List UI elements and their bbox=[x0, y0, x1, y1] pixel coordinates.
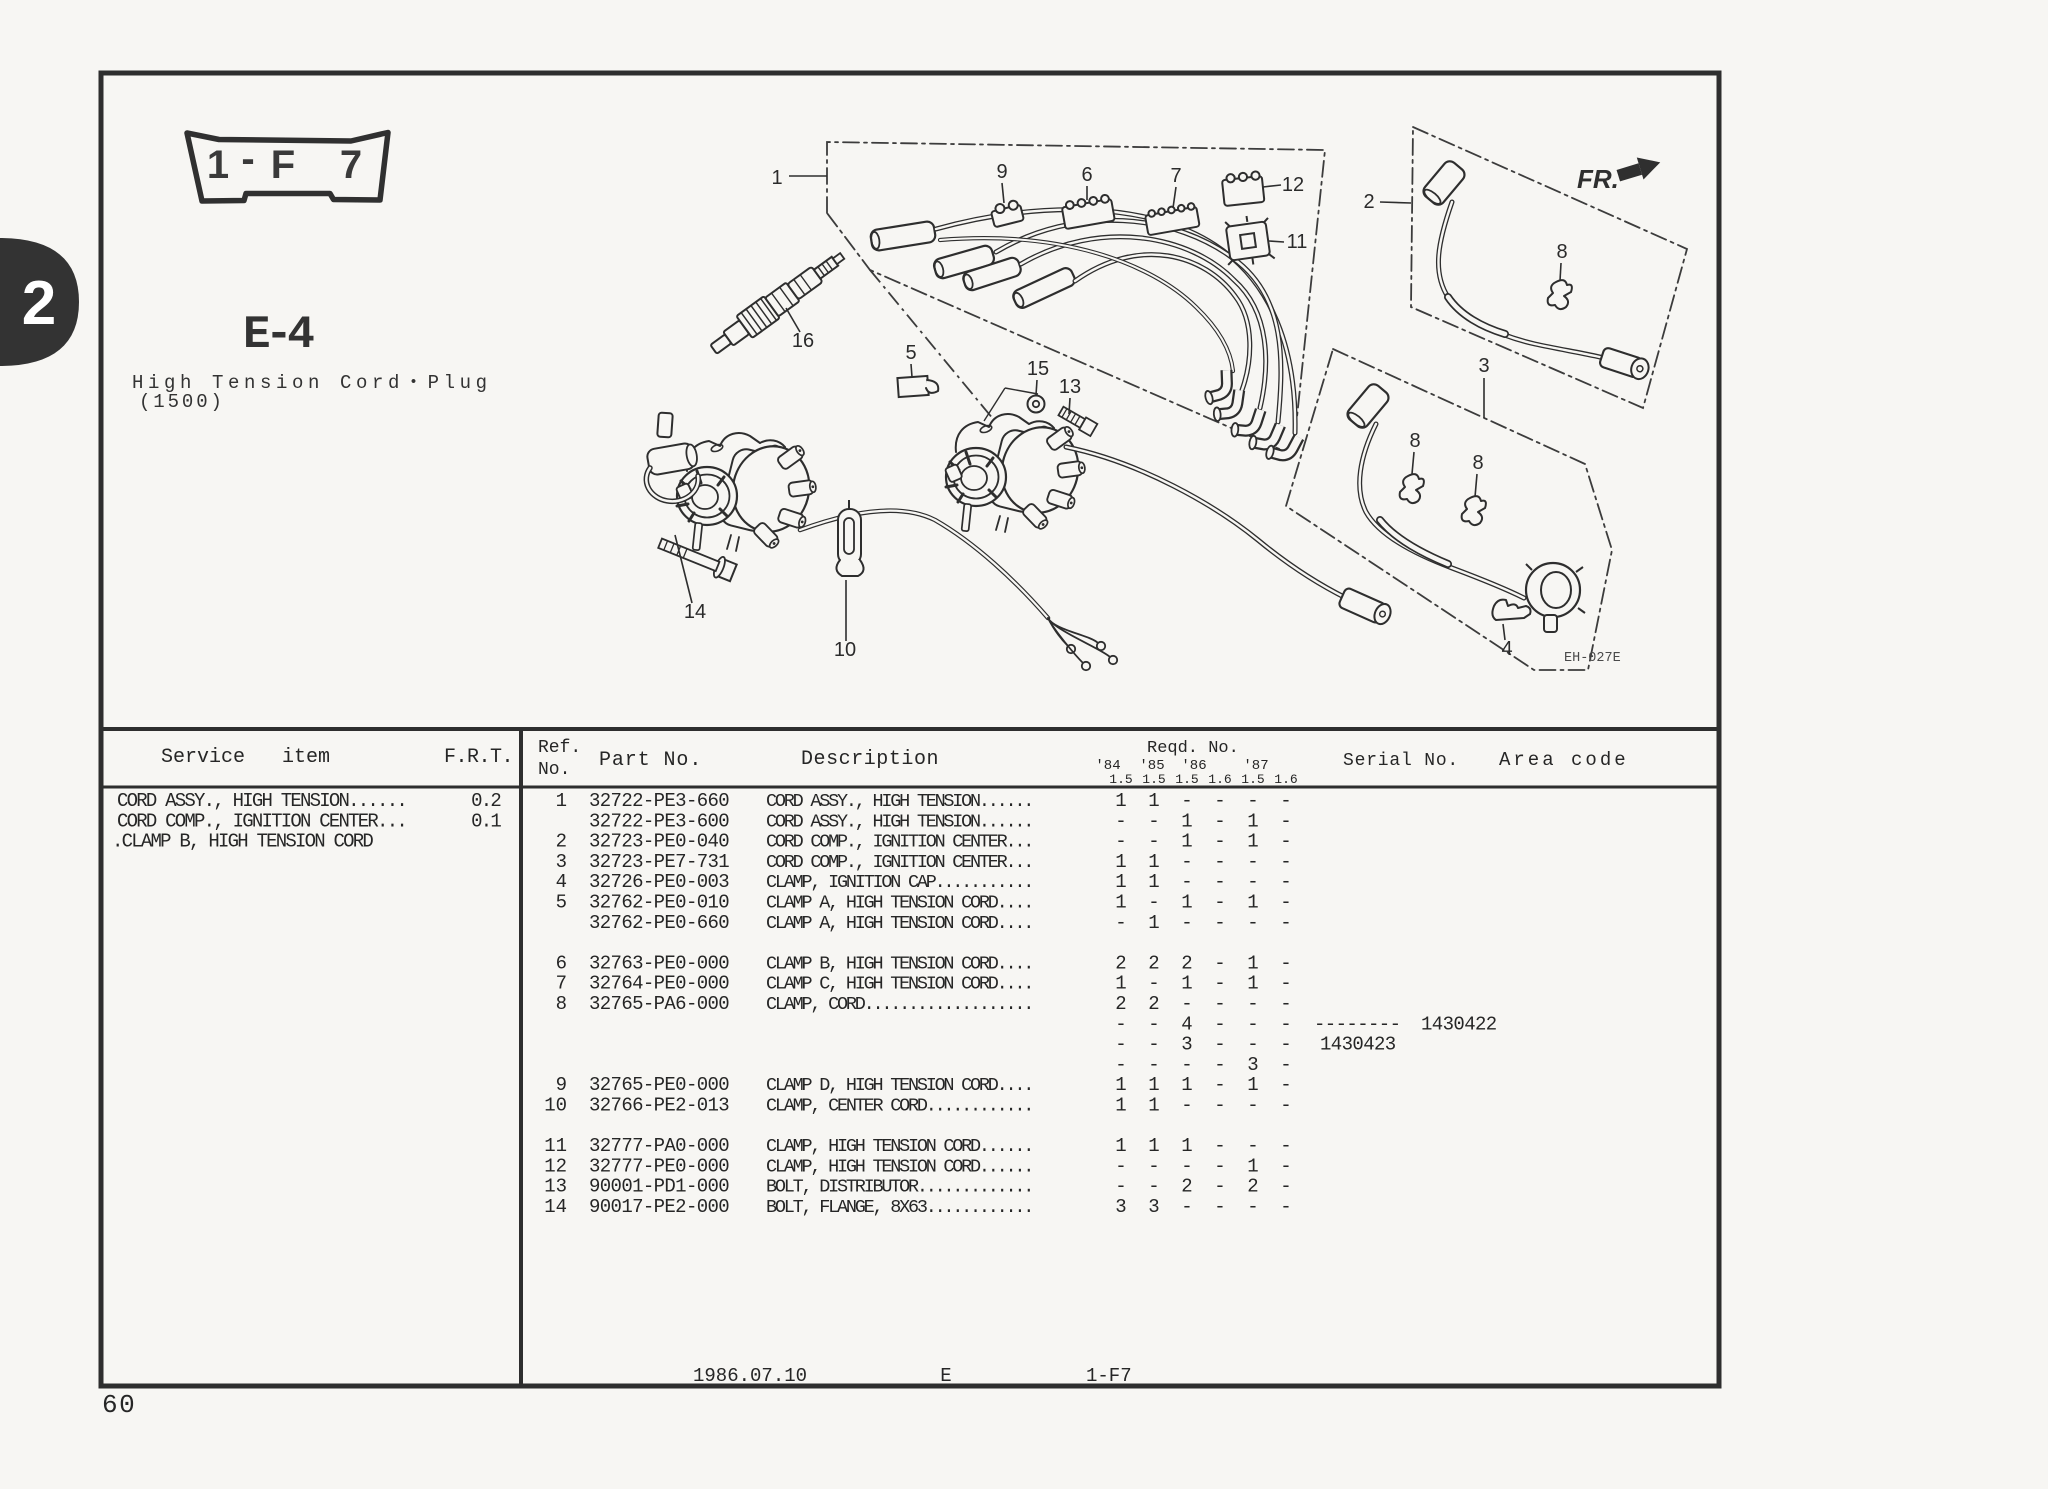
svg-text:E: E bbox=[940, 1365, 951, 1387]
svg-text:-: - bbox=[1148, 973, 1159, 995]
svg-text:CLAMP, IGNITION CAP...........: CLAMP, IGNITION CAP........... bbox=[766, 872, 1032, 893]
svg-text:item: item bbox=[282, 746, 330, 769]
svg-text:-: - bbox=[1214, 973, 1225, 995]
svg-text:-: - bbox=[1148, 1155, 1159, 1177]
svg-text:32762-PE0-010: 32762-PE0-010 bbox=[589, 892, 729, 914]
svg-text:-: - bbox=[1214, 892, 1225, 914]
svg-text:8: 8 bbox=[1556, 241, 1567, 263]
svg-text:Ref.: Ref. bbox=[538, 738, 581, 758]
svg-text:-: - bbox=[1181, 1155, 1192, 1177]
svg-text:1: 1 bbox=[1247, 810, 1258, 832]
svg-text:-: - bbox=[1247, 912, 1258, 934]
svg-text:32722-PE3-660: 32722-PE3-660 bbox=[589, 790, 729, 812]
svg-text:E-4: E-4 bbox=[243, 309, 314, 361]
svg-text:8: 8 bbox=[556, 993, 567, 1015]
svg-text:2: 2 bbox=[1181, 952, 1192, 974]
svg-text:11: 11 bbox=[544, 1135, 567, 1157]
svg-text:1.5: 1.5 bbox=[1241, 772, 1264, 787]
svg-text:12: 12 bbox=[544, 1155, 567, 1177]
svg-text:-: - bbox=[1247, 993, 1258, 1015]
svg-text:-: - bbox=[1214, 1095, 1225, 1117]
svg-text:3: 3 bbox=[556, 851, 567, 873]
svg-text:CLAMP D, HIGH TENSION CORD....: CLAMP D, HIGH TENSION CORD.... bbox=[766, 1075, 1032, 1096]
svg-text:-: - bbox=[1181, 993, 1192, 1015]
svg-text:-: - bbox=[1214, 1074, 1225, 1096]
svg-text:6: 6 bbox=[556, 952, 567, 974]
svg-text:F.R.T.: F.R.T. bbox=[444, 746, 513, 769]
svg-text:-: - bbox=[1214, 1155, 1225, 1177]
svg-text:-: - bbox=[1214, 790, 1225, 812]
svg-text:CLAMP, HIGH TENSION CORD......: CLAMP, HIGH TENSION CORD...... bbox=[766, 1136, 1032, 1157]
svg-text:2: 2 bbox=[1115, 993, 1126, 1015]
svg-text:3: 3 bbox=[1478, 355, 1489, 377]
svg-text:-: - bbox=[1148, 831, 1159, 853]
svg-text:-: - bbox=[1148, 892, 1159, 914]
svg-text:EH-027E: EH-027E bbox=[1564, 651, 1621, 666]
svg-text:-: - bbox=[1280, 1074, 1291, 1096]
svg-text:-: - bbox=[1280, 1095, 1291, 1117]
svg-text:-: - bbox=[1280, 973, 1291, 995]
svg-text:--------: -------- bbox=[1314, 1013, 1400, 1035]
svg-text:1: 1 bbox=[1148, 790, 1159, 812]
svg-text:-: - bbox=[1214, 1135, 1225, 1157]
svg-text:1.5: 1.5 bbox=[1109, 772, 1132, 787]
svg-text:-: - bbox=[1214, 851, 1225, 873]
svg-text:60: 60 bbox=[102, 1390, 136, 1420]
svg-text:-: - bbox=[1115, 912, 1126, 934]
svg-text:-: - bbox=[1214, 952, 1225, 974]
svg-text:2: 2 bbox=[1148, 952, 1159, 974]
svg-text:-: - bbox=[241, 137, 254, 181]
svg-text:15: 15 bbox=[1027, 358, 1049, 380]
svg-text:-: - bbox=[1115, 1013, 1126, 1035]
svg-text:-: - bbox=[1280, 1135, 1291, 1157]
svg-text:-: - bbox=[1280, 1034, 1291, 1056]
svg-text:1.6: 1.6 bbox=[1274, 772, 1297, 787]
svg-text:-: - bbox=[1181, 871, 1192, 893]
svg-text:1: 1 bbox=[1115, 1074, 1126, 1096]
svg-text:1: 1 bbox=[1247, 1074, 1258, 1096]
svg-text:Serial No.: Serial No. bbox=[1343, 751, 1459, 771]
svg-text:9: 9 bbox=[556, 1074, 567, 1096]
svg-text:-: - bbox=[1247, 851, 1258, 873]
svg-text:-: - bbox=[1181, 1095, 1192, 1117]
svg-text:-: - bbox=[1214, 1196, 1225, 1218]
svg-text:CORD COMP., IGNITION CENTER...: CORD COMP., IGNITION CENTER... bbox=[766, 832, 1032, 853]
svg-text:1: 1 bbox=[1247, 952, 1258, 974]
svg-text:No.: No. bbox=[538, 760, 570, 780]
svg-text:32723-PE7-731: 32723-PE7-731 bbox=[589, 851, 729, 873]
svg-text:CLAMP, HIGH TENSION CORD......: CLAMP, HIGH TENSION CORD...... bbox=[766, 1156, 1032, 1177]
svg-text:Part No.: Part No. bbox=[599, 749, 702, 772]
svg-text:1.6: 1.6 bbox=[1208, 772, 1231, 787]
svg-text:32762-PE0-660: 32762-PE0-660 bbox=[589, 912, 729, 934]
svg-text:CLAMP C, HIGH TENSION CORD....: CLAMP C, HIGH TENSION CORD.... bbox=[766, 974, 1032, 995]
svg-text:1: 1 bbox=[1181, 810, 1192, 832]
svg-text:(1500): (1500) bbox=[139, 391, 225, 413]
svg-text:-: - bbox=[1181, 851, 1192, 873]
svg-text:2: 2 bbox=[1363, 191, 1374, 213]
svg-text:-: - bbox=[1247, 1095, 1258, 1117]
svg-text:-: - bbox=[1280, 993, 1291, 1015]
svg-text:-: - bbox=[1280, 831, 1291, 853]
svg-text:-: - bbox=[1115, 1054, 1126, 1076]
svg-text:0.2: 0.2 bbox=[471, 790, 501, 812]
svg-text:1: 1 bbox=[1181, 892, 1192, 914]
svg-text:-: - bbox=[1247, 1034, 1258, 1056]
svg-text:1986.07.10: 1986.07.10 bbox=[693, 1365, 807, 1387]
svg-text:8: 8 bbox=[1409, 430, 1420, 452]
svg-text:-: - bbox=[1181, 1054, 1192, 1076]
svg-text:-: - bbox=[1214, 871, 1225, 893]
svg-text:4: 4 bbox=[1181, 1013, 1192, 1035]
svg-text:-: - bbox=[1115, 1176, 1126, 1198]
svg-text:-: - bbox=[1280, 810, 1291, 832]
svg-text:1: 1 bbox=[1115, 790, 1126, 812]
svg-text:Reqd. No.: Reqd. No. bbox=[1147, 739, 1239, 758]
svg-text:-: - bbox=[1181, 790, 1192, 812]
svg-text:8: 8 bbox=[1472, 452, 1483, 474]
svg-text:-: - bbox=[1247, 1196, 1258, 1218]
svg-text:-: - bbox=[1280, 952, 1291, 974]
svg-text:2: 2 bbox=[556, 831, 567, 853]
svg-text:1: 1 bbox=[1115, 892, 1126, 914]
svg-text:1: 1 bbox=[1115, 973, 1126, 995]
svg-text:-: - bbox=[1148, 810, 1159, 832]
svg-text:3: 3 bbox=[1247, 1054, 1258, 1076]
svg-text:Service: Service bbox=[161, 746, 245, 769]
svg-text:-: - bbox=[1280, 912, 1291, 934]
svg-text:90001-PD1-000: 90001-PD1-000 bbox=[589, 1176, 729, 1198]
svg-text:5: 5 bbox=[905, 342, 916, 364]
svg-text:-: - bbox=[1115, 810, 1126, 832]
svg-text:-: - bbox=[1214, 1034, 1225, 1056]
svg-text:10: 10 bbox=[544, 1095, 567, 1117]
svg-text:1.5: 1.5 bbox=[1142, 772, 1165, 787]
svg-text:FR.: FR. bbox=[1577, 164, 1619, 194]
svg-text:CLAMP A, HIGH TENSION CORD....: CLAMP A, HIGH TENSION CORD.... bbox=[766, 893, 1032, 914]
svg-text:-: - bbox=[1115, 1034, 1126, 1056]
svg-text:-: - bbox=[1214, 1054, 1225, 1076]
svg-text:CLAMP, CENTER CORD............: CLAMP, CENTER CORD............ bbox=[766, 1096, 1032, 1117]
svg-text:1: 1 bbox=[1148, 871, 1159, 893]
svg-text:-: - bbox=[1280, 1196, 1291, 1218]
svg-text:1-F7: 1-F7 bbox=[1086, 1365, 1132, 1387]
svg-text:-: - bbox=[1214, 831, 1225, 853]
svg-text:13: 13 bbox=[544, 1176, 567, 1198]
svg-text:2: 2 bbox=[1247, 1176, 1258, 1198]
svg-text:-: - bbox=[1280, 871, 1291, 893]
svg-text:2: 2 bbox=[1115, 952, 1126, 974]
svg-text:7: 7 bbox=[556, 973, 567, 995]
svg-text:-: - bbox=[1280, 892, 1291, 914]
svg-text:CLAMP B, HIGH TENSION CORD....: CLAMP B, HIGH TENSION CORD.... bbox=[766, 953, 1032, 974]
svg-text:1: 1 bbox=[207, 143, 229, 187]
svg-text:0.1: 0.1 bbox=[471, 810, 501, 832]
svg-text:Area code: Area code bbox=[1499, 749, 1629, 771]
svg-text:6: 6 bbox=[1081, 164, 1092, 186]
svg-text:11: 11 bbox=[1287, 231, 1308, 253]
svg-text:-: - bbox=[1214, 993, 1225, 1015]
svg-text:1: 1 bbox=[1115, 871, 1126, 893]
svg-text:90017-PE2-000: 90017-PE2-000 bbox=[589, 1196, 729, 1218]
svg-text:CORD ASSY., HIGH TENSION......: CORD ASSY., HIGH TENSION...... bbox=[766, 791, 1032, 812]
svg-text:1: 1 bbox=[1115, 1135, 1126, 1157]
svg-text:1: 1 bbox=[1181, 1135, 1192, 1157]
svg-text:-: - bbox=[1247, 790, 1258, 812]
svg-text:12: 12 bbox=[1282, 174, 1304, 196]
svg-text:9: 9 bbox=[996, 161, 1007, 183]
svg-text:1: 1 bbox=[1181, 1074, 1192, 1096]
svg-text:CORD ASSY., HIGH TENSION......: CORD ASSY., HIGH TENSION...... bbox=[117, 790, 406, 812]
svg-text:1: 1 bbox=[1148, 1135, 1159, 1157]
svg-text:1: 1 bbox=[1181, 973, 1192, 995]
svg-text:-: - bbox=[1280, 1176, 1291, 1198]
svg-text:-: - bbox=[1214, 1013, 1225, 1035]
svg-text:16: 16 bbox=[792, 330, 814, 352]
svg-text:-: - bbox=[1148, 1013, 1159, 1035]
svg-text:2: 2 bbox=[22, 269, 56, 338]
svg-text:32726-PE0-003: 32726-PE0-003 bbox=[589, 871, 729, 893]
svg-text:-: - bbox=[1247, 871, 1258, 893]
svg-text:-: - bbox=[1148, 1034, 1159, 1056]
svg-text:1: 1 bbox=[1148, 1095, 1159, 1117]
svg-text:1430423: 1430423 bbox=[1320, 1034, 1396, 1056]
svg-text:32723-PE0-040: 32723-PE0-040 bbox=[589, 831, 729, 853]
svg-text:32722-PE3-600: 32722-PE3-600 bbox=[589, 810, 729, 832]
svg-text:4: 4 bbox=[556, 871, 567, 893]
svg-text:1: 1 bbox=[1181, 831, 1192, 853]
svg-text:1430422: 1430422 bbox=[1421, 1013, 1497, 1035]
svg-text:3: 3 bbox=[1181, 1034, 1192, 1056]
svg-text:Description: Description bbox=[801, 748, 939, 771]
svg-text:2: 2 bbox=[1181, 1176, 1192, 1198]
svg-text:1: 1 bbox=[1115, 1095, 1126, 1117]
svg-text:1.5: 1.5 bbox=[1175, 772, 1198, 787]
svg-text:BOLT, FLANGE, 8X63............: BOLT, FLANGE, 8X63............ bbox=[766, 1197, 1032, 1218]
svg-text:1: 1 bbox=[1148, 851, 1159, 873]
svg-text:32777-PE0-000: 32777-PE0-000 bbox=[589, 1155, 729, 1177]
svg-text:-: - bbox=[1280, 1054, 1291, 1076]
svg-text:32766-PE2-013: 32766-PE2-013 bbox=[589, 1095, 729, 1117]
svg-text:3: 3 bbox=[1148, 1196, 1159, 1218]
svg-text:1: 1 bbox=[771, 167, 782, 189]
svg-text:1: 1 bbox=[1247, 1155, 1258, 1177]
svg-text:1: 1 bbox=[556, 790, 567, 812]
svg-text:10: 10 bbox=[834, 639, 856, 661]
svg-text:CORD COMP., IGNITION CENTER...: CORD COMP., IGNITION CENTER... bbox=[766, 852, 1032, 873]
svg-text:1: 1 bbox=[1247, 892, 1258, 914]
svg-text:-: - bbox=[1247, 1135, 1258, 1157]
svg-text:1: 1 bbox=[1148, 1074, 1159, 1096]
svg-text:13: 13 bbox=[1059, 376, 1081, 398]
svg-text:-: - bbox=[1181, 1196, 1192, 1218]
svg-text:1: 1 bbox=[1247, 831, 1258, 853]
svg-text:1: 1 bbox=[1247, 973, 1258, 995]
svg-text:CLAMP A, HIGH TENSION CORD....: CLAMP A, HIGH TENSION CORD.... bbox=[766, 913, 1032, 934]
svg-text:-: - bbox=[1280, 1013, 1291, 1035]
svg-text:-: - bbox=[1214, 912, 1225, 934]
svg-text:7: 7 bbox=[1170, 165, 1181, 187]
svg-text:CORD ASSY., HIGH TENSION......: CORD ASSY., HIGH TENSION...... bbox=[766, 811, 1032, 832]
svg-text:-: - bbox=[1214, 1176, 1225, 1198]
svg-text:-: - bbox=[1181, 912, 1192, 934]
svg-text:32764-PE0-000: 32764-PE0-000 bbox=[589, 973, 729, 995]
svg-text:1: 1 bbox=[1115, 851, 1126, 873]
svg-text:-: - bbox=[1148, 1054, 1159, 1076]
svg-text:14: 14 bbox=[684, 601, 706, 623]
svg-text:BOLT, DISTRIBUTOR.............: BOLT, DISTRIBUTOR............. bbox=[766, 1177, 1032, 1198]
svg-text:.CLAMP B, HIGH TENSION CORD: .CLAMP B, HIGH TENSION CORD bbox=[112, 831, 373, 853]
svg-text:2: 2 bbox=[1148, 993, 1159, 1015]
svg-text:32765-PE0-000: 32765-PE0-000 bbox=[589, 1074, 729, 1096]
svg-text:32763-PE0-000: 32763-PE0-000 bbox=[589, 952, 729, 974]
svg-text:3: 3 bbox=[1115, 1196, 1126, 1218]
svg-text:-: - bbox=[1148, 1176, 1159, 1198]
svg-text:32777-PA0-000: 32777-PA0-000 bbox=[589, 1135, 729, 1157]
svg-text:-: - bbox=[1214, 810, 1225, 832]
svg-text:14: 14 bbox=[544, 1196, 567, 1218]
svg-text:5: 5 bbox=[556, 892, 567, 914]
svg-text:CORD COMP., IGNITION CENTER...: CORD COMP., IGNITION CENTER... bbox=[117, 810, 406, 832]
svg-text:-: - bbox=[1115, 831, 1126, 853]
svg-text:F: F bbox=[271, 143, 295, 187]
svg-text:CLAMP, CORD...................: CLAMP, CORD................... bbox=[766, 994, 1032, 1015]
svg-text:7: 7 bbox=[340, 143, 362, 187]
svg-text:-: - bbox=[1247, 1013, 1258, 1035]
svg-text:-: - bbox=[1280, 790, 1291, 812]
svg-text:-: - bbox=[1115, 1155, 1126, 1177]
svg-text:32765-PA6-000: 32765-PA6-000 bbox=[589, 993, 729, 1015]
svg-text:1: 1 bbox=[1148, 912, 1159, 934]
svg-text:-: - bbox=[1280, 851, 1291, 873]
svg-text:-: - bbox=[1280, 1155, 1291, 1177]
svg-text:4: 4 bbox=[1501, 638, 1512, 660]
